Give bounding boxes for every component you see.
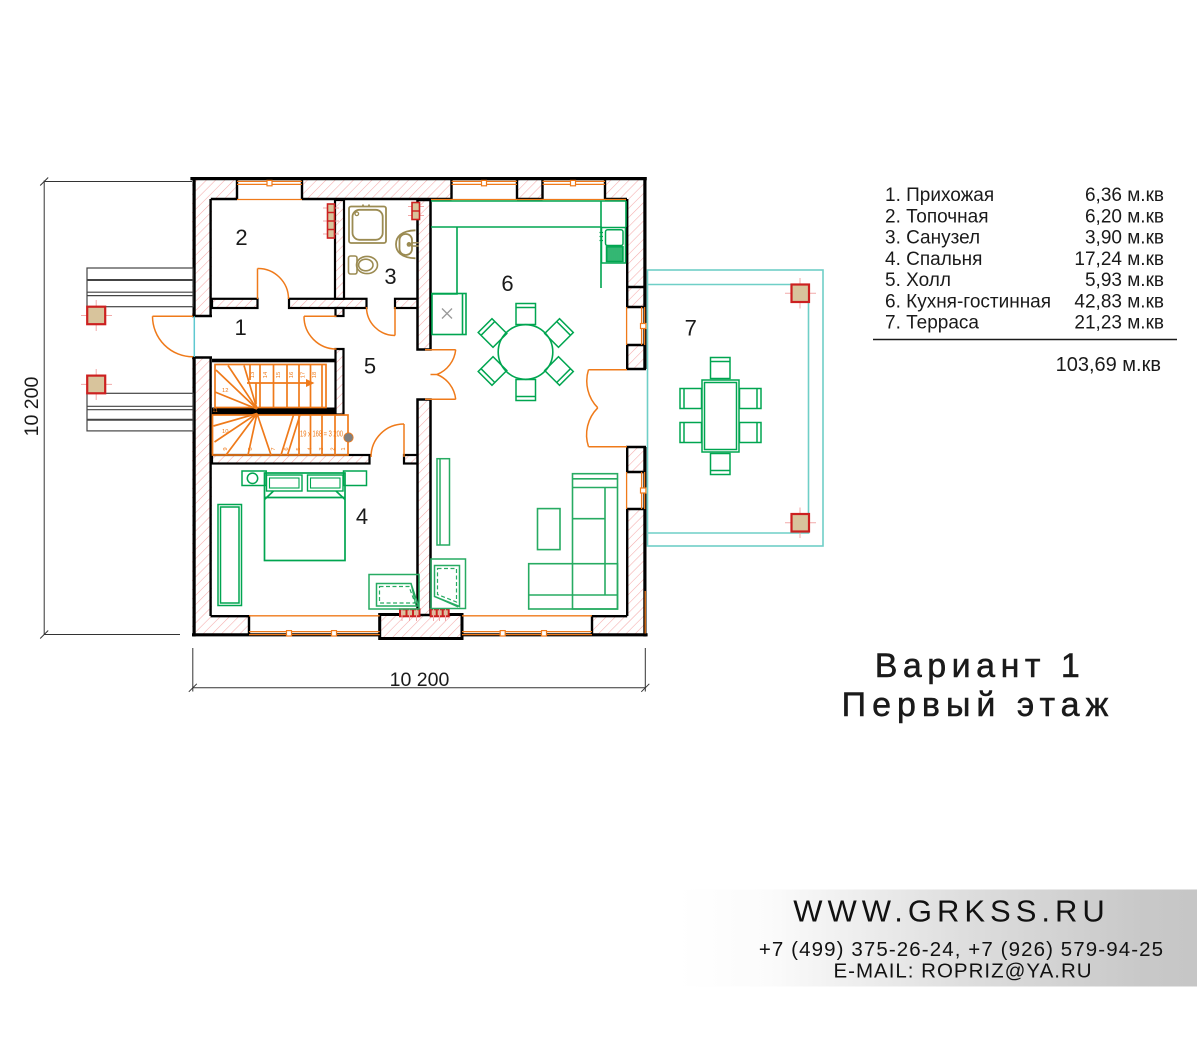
svg-text:3: 3 [319, 447, 325, 450]
svg-text:3: 3 [384, 264, 396, 289]
svg-text:21,23 м.кв: 21,23 м.кв [1074, 313, 1164, 334]
svg-text:1: 1 [234, 315, 246, 340]
svg-text:6. Кухня-гостинная: 6. Кухня-гостинная [885, 291, 1051, 312]
svg-text:7. Терраса: 7. Терраса [885, 313, 979, 334]
svg-text:5. Холл: 5. Холл [885, 270, 951, 291]
svg-text:6,36 м.кв: 6,36 м.кв [1085, 185, 1164, 206]
svg-text:2. Топочная: 2. Топочная [885, 206, 989, 227]
svg-text:103,69 м.кв: 103,69 м.кв [1056, 354, 1161, 376]
svg-text:6: 6 [501, 271, 513, 296]
svg-text:3. Санузел: 3. Санузел [885, 228, 980, 249]
svg-text:4. Спальня: 4. Спальня [885, 249, 982, 270]
svg-text:5: 5 [296, 447, 302, 450]
svg-text:9: 9 [223, 447, 229, 450]
svg-text:7: 7 [271, 447, 277, 450]
svg-text:11: 11 [213, 408, 218, 414]
svg-text:10 200: 10 200 [21, 377, 43, 437]
svg-text:10 200: 10 200 [390, 669, 450, 691]
svg-text:4: 4 [356, 504, 368, 529]
svg-text:12: 12 [222, 388, 228, 394]
svg-text:2: 2 [235, 225, 247, 250]
svg-text:1: 1 [341, 447, 347, 450]
svg-text:6,20 м.кв: 6,20 м.кв [1085, 206, 1164, 227]
svg-text:19 x 168 = 3 200: 19 x 168 = 3 200 [300, 430, 343, 439]
svg-text:10: 10 [222, 429, 228, 435]
svg-text:7: 7 [685, 316, 697, 341]
svg-text:15: 15 [276, 372, 282, 378]
svg-text:3,90 м.кв: 3,90 м.кв [1085, 228, 1164, 249]
svg-text:17: 17 [301, 372, 307, 378]
svg-text:14: 14 [263, 371, 269, 378]
svg-text:17,24 м.кв: 17,24 м.кв [1074, 249, 1164, 270]
svg-text:Вариант 1: Вариант 1 [875, 647, 1086, 685]
svg-text:18: 18 [312, 372, 318, 378]
svg-text:5: 5 [364, 354, 376, 379]
svg-text:5,93 м.кв: 5,93 м.кв [1085, 270, 1164, 291]
svg-text:8: 8 [248, 447, 254, 450]
svg-text:16: 16 [289, 372, 295, 378]
svg-text:42,83 м.кв: 42,83 м.кв [1074, 291, 1164, 312]
svg-text:Первый этаж: Первый этаж [842, 686, 1115, 724]
svg-text:2: 2 [331, 447, 337, 450]
svg-text:6: 6 [284, 447, 290, 450]
svg-text:E-MAIL: ROPRIZ@YA.RU: E-MAIL: ROPRIZ@YA.RU [833, 960, 1092, 983]
svg-text:+7 (499) 375-26-24, +7 (926) 5: +7 (499) 375-26-24, +7 (926) 579-94-25 [759, 938, 1164, 961]
svg-text:1. Прихожая: 1. Прихожая [885, 185, 994, 206]
svg-text:WWW.GRKSS.RU: WWW.GRKSS.RU [793, 894, 1110, 929]
svg-text:13: 13 [250, 372, 256, 378]
